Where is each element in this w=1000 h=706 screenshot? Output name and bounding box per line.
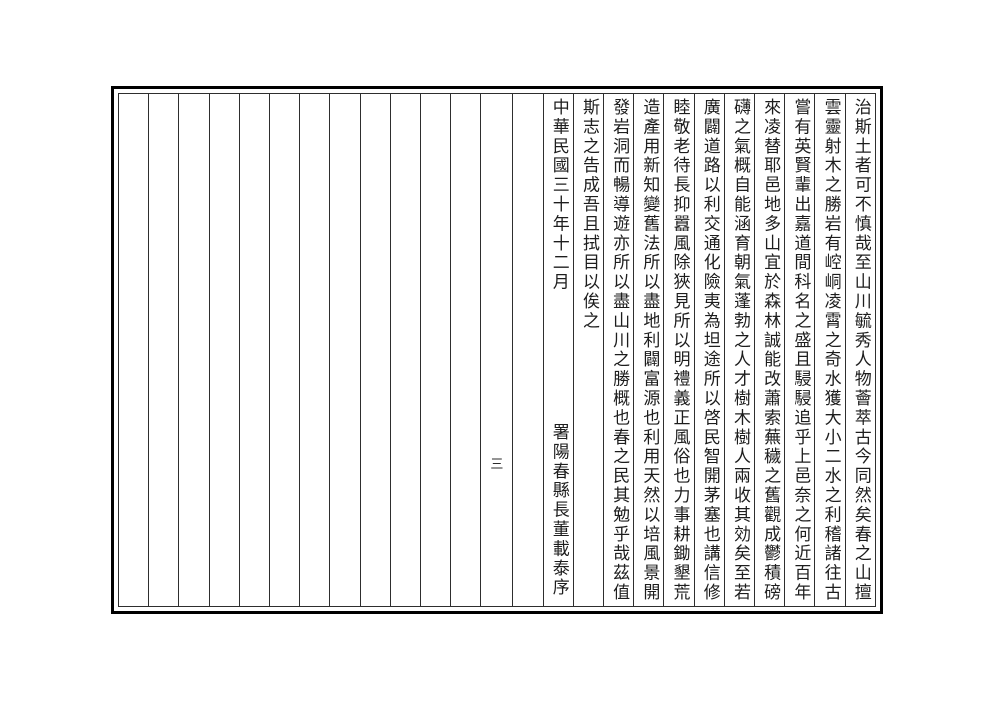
column-text: 嘗有英賢輩出嘉道間科名之盛且駸駸追乎上邑奈之何近百年 (791, 98, 808, 602)
column-text: 雲靈射木之勝岩有崆峒凌霄之奇水獲大小二水之利稽諸往古 (822, 98, 839, 602)
empty-column (299, 94, 329, 606)
page-number: 三 (490, 453, 503, 472)
text-column-3: 嘗有英賢輩出嘉道間科名之盛且駸駸追乎上邑奈之何近百年 (784, 94, 814, 606)
text-column-5: 礴之氣概自能涵育朝氣蓬勃之人才樹木樹人兩收其効矣至若 (724, 94, 754, 606)
column-text: 來凌替耶邑地多山宜於森林誠能改蕭索蕪穢之舊觀成鬱積磅 (761, 98, 778, 602)
colophon-column: 中華民國三十年十二月 署陽春縣長董載泰序 (543, 94, 573, 606)
empty-column (329, 94, 359, 606)
text-column-2: 雲靈射木之勝岩有崆峒凌霄之奇水獲大小二水之利稽諸往古 (814, 94, 844, 606)
text-column-7: 睦敬老待長抑囂風除狹見所以明禮義正風俗也力事耕鋤墾荒 (663, 94, 693, 606)
text-column-9: 發岩洞而暢導遊亦所以盡山川之勝概也春之民其勉乎哉茲值 (603, 94, 633, 606)
empty-column (148, 94, 178, 606)
text-column-8: 造產用新知變舊法所以盡地利闢富源也利用天然以培風景開 (633, 94, 663, 606)
column-text: 廣闢道路以利交通化險夷為坦途所以啓民智開茅塞也講信修 (701, 98, 718, 602)
empty-column (360, 94, 390, 606)
column-grid: 三 中華民國三十年十二月 署陽春縣長董載泰序 斯志之告成吾且拭目以俟之 發岩洞而… (118, 93, 876, 607)
empty-column (512, 94, 542, 606)
empty-column (239, 94, 269, 606)
empty-column (269, 94, 299, 606)
column-text: 造產用新知變舊法所以盡地利闢富源也利用天然以培風景開 (640, 98, 657, 602)
empty-column (178, 94, 208, 606)
text-column-10: 斯志之告成吾且拭目以俟之 (573, 94, 603, 606)
column-text: 發岩洞而暢導遊亦所以盡山川之勝概也春之民其勉乎哉茲值 (610, 98, 627, 602)
empty-column (209, 94, 239, 606)
column-text: 斯志之告成吾且拭目以俟之 (580, 98, 597, 331)
folio-column: 三 (480, 94, 512, 606)
column-text: 礴之氣概自能涵育朝氣蓬勃之人才樹木樹人兩收其効矣至若 (731, 98, 748, 602)
date-line: 中華民國三十年十二月 (550, 98, 567, 292)
column-text: 睦敬老待長抑囂風除狹見所以明禮義正風俗也力事耕鋤墾荒 (671, 98, 688, 602)
column-text: 治斯土者可不慎哉至山川毓秀人物薈萃古今同然矣春之山擅 (852, 98, 869, 602)
page-border-frame: 三 中華民國三十年十二月 署陽春縣長董載泰序 斯志之告成吾且拭目以俟之 發岩洞而… (111, 86, 883, 614)
signature-line: 署陽春縣長董載泰序 (550, 423, 567, 598)
text-column-1: 治斯土者可不慎哉至山川毓秀人物薈萃古今同然矣春之山擅 (845, 94, 875, 606)
empty-column (420, 94, 450, 606)
text-column-6: 廣闢道路以利交通化險夷為坦途所以啓民智開茅塞也講信修 (694, 94, 724, 606)
empty-column (390, 94, 420, 606)
empty-column (450, 94, 480, 606)
scanned-page-sheet: 三 中華民國三十年十二月 署陽春縣長董載泰序 斯志之告成吾且拭目以俟之 發岩洞而… (0, 0, 1000, 706)
empty-column (119, 94, 148, 606)
text-column-4: 來凌替耶邑地多山宜於森林誠能改蕭索蕪穢之舊觀成鬱積磅 (754, 94, 784, 606)
